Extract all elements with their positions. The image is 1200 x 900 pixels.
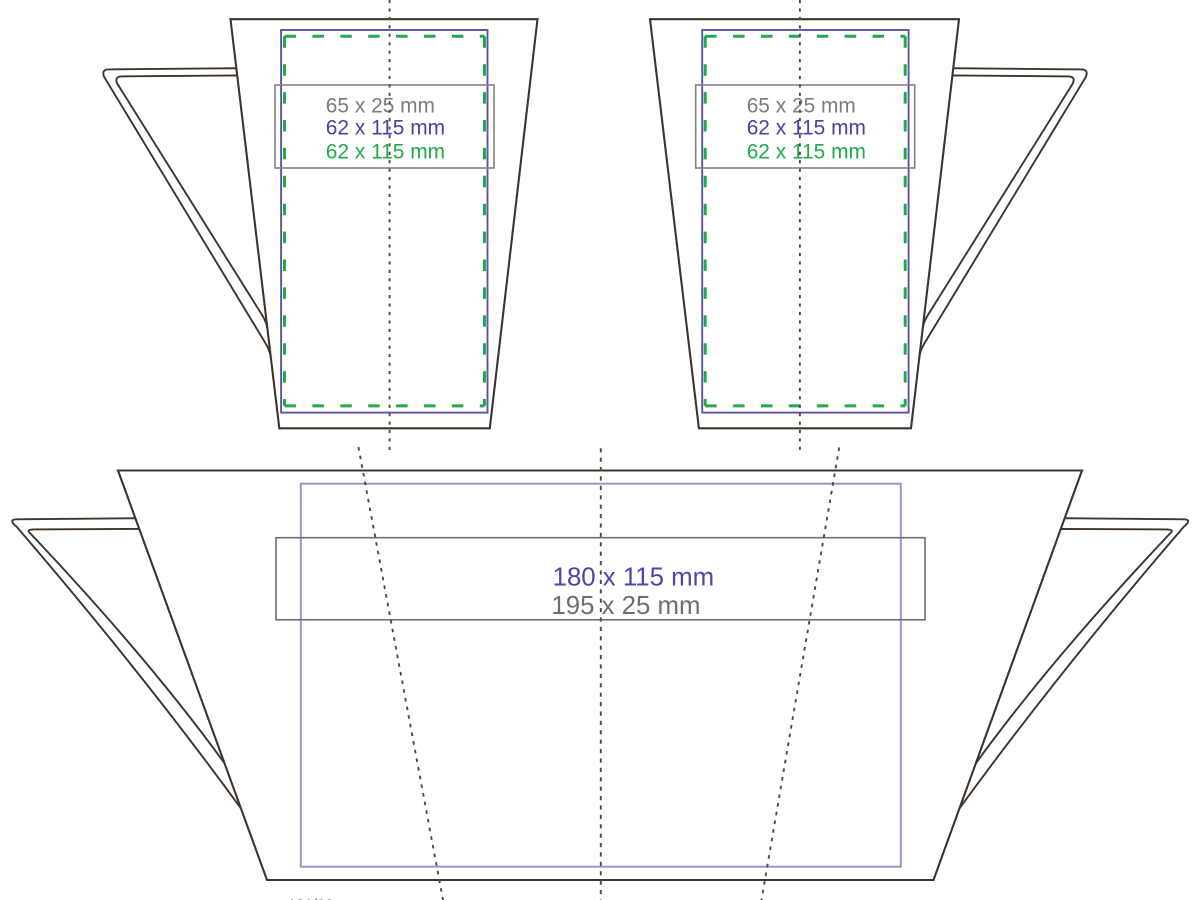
svg-text:195 x 25 mm: 195 x 25 mm — [551, 592, 700, 620]
svg-text:62 x 115 mm: 62 x 115 mm — [747, 117, 866, 140]
svg-text:62 x 115 mm: 62 x 115 mm — [326, 141, 445, 164]
svg-text:65 x 25 mm: 65 x 25 mm — [747, 95, 856, 118]
svg-text:65 x 25 mm: 65 x 25 mm — [326, 95, 435, 118]
svg-text:62 x 115 mm: 62 x 115 mm — [747, 141, 866, 164]
svg-text:180 x 115 mm: 180 x 115 mm — [553, 564, 715, 592]
svg-text:180/93: 180/93 — [288, 896, 334, 900]
svg-text:62 x 115 mm: 62 x 115 mm — [326, 117, 445, 140]
